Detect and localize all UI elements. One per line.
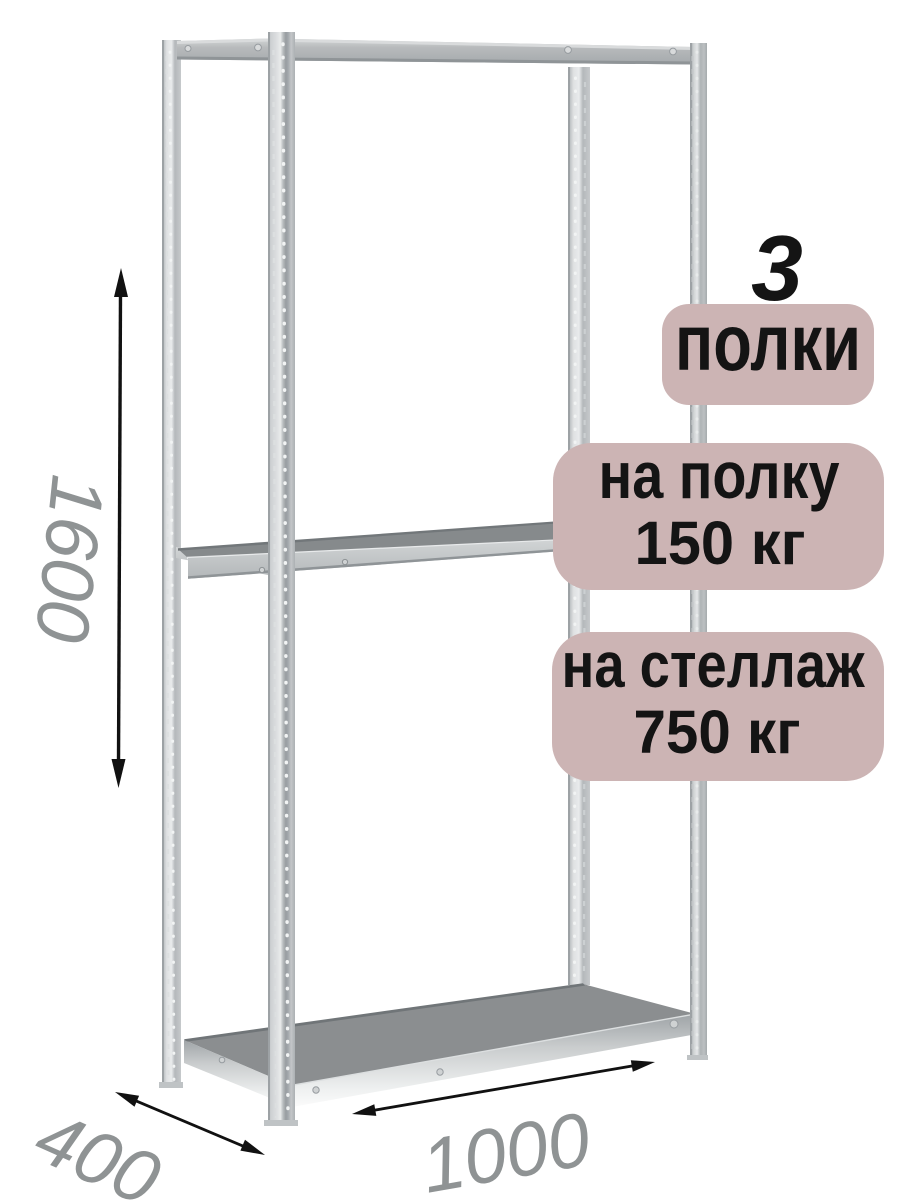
svg-text:150 кг: 150 кг [635, 509, 806, 577]
svg-text:1600: 1600 [20, 471, 121, 646]
svg-text:на полку: на полку [599, 438, 840, 512]
svg-text:750 кг: 750 кг [634, 698, 801, 766]
svg-text:1000: 1000 [415, 1097, 596, 1200]
svg-text:полки: полки [675, 298, 861, 387]
svg-text:на стеллаж: на стеллаж [562, 629, 866, 701]
svg-text:400: 400 [23, 1094, 172, 1200]
